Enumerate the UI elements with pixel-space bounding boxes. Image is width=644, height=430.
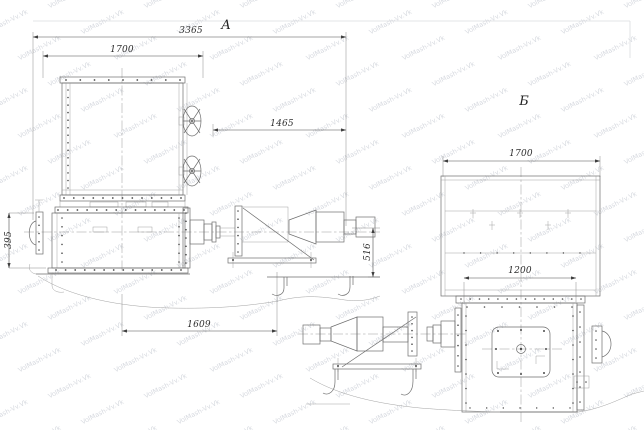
- drawing-linework: [0, 0, 644, 430]
- dimension-trough-height: 395: [4, 218, 14, 262]
- view-a-centerlines: [24, 68, 380, 272]
- view-b-housing: [462, 303, 577, 412]
- dimension-tank-width-a: 1700: [100, 45, 144, 55]
- dimension-drive-height: 516: [363, 230, 373, 274]
- dimension-overall-length: 3365: [169, 26, 213, 36]
- view-a-handwheels: [179, 106, 201, 186]
- view-b-centerlines: [298, 167, 562, 422]
- dimension-housing-width: 1200: [498, 266, 542, 276]
- view-a-tank: [60, 77, 187, 207]
- view-a-dimensions: [9, 32, 380, 336]
- dimension-drive-extension: 1465: [260, 119, 304, 129]
- view-b-dimensions: [443, 156, 600, 302]
- view-a-left-end-cap: [29, 200, 64, 292]
- view-b-right-flange: [574, 305, 611, 410]
- drawing-canvas: VolMash-Vv.VkVolMash-Vv.VkVolMash-Vv.VkV…: [0, 0, 644, 430]
- view-a-trough-body: [48, 207, 188, 273]
- view-b-support-skid: [306, 358, 644, 412]
- view-b-drive-assembly: [303, 308, 461, 372]
- view-a-support-skid: [29, 252, 380, 308]
- dimension-base-length: 1609: [177, 320, 221, 330]
- dimension-tank-width-b: 1700: [499, 149, 543, 159]
- view-a: [9, 32, 380, 336]
- view-b-label: Б: [502, 94, 546, 109]
